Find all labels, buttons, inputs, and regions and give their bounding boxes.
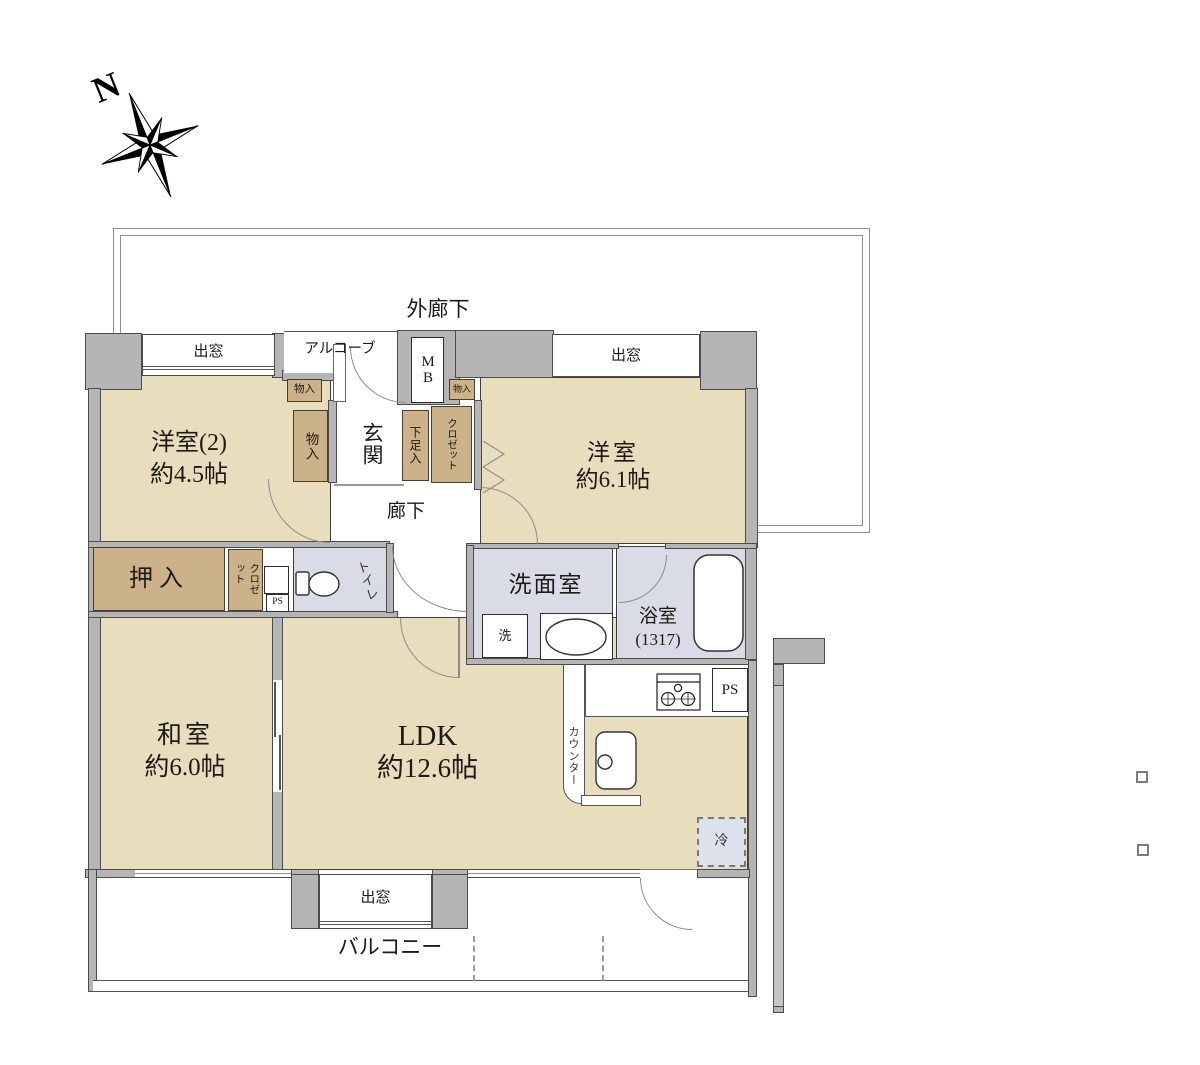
pillar-mark (1136, 771, 1148, 783)
wall (700, 331, 757, 390)
futon-closet-label: 押入 (93, 549, 225, 609)
bathroom-size-label: (1317) (618, 629, 698, 651)
bay-window-top-left-sill (142, 366, 275, 370)
pillar-mark (1137, 844, 1149, 856)
storage-box-2-label: 物入 (449, 380, 475, 399)
room-ldk-area: 約12.6帖 (350, 752, 505, 784)
pipe-space-kitchen-label: PS (712, 670, 748, 710)
balcony-label: バルコニー (320, 935, 460, 961)
sliding-door-leaf (279, 735, 281, 790)
washer-label: 洗 (482, 616, 528, 656)
room-western-name: 洋室 (553, 439, 673, 467)
wall (291, 874, 319, 929)
wall (745, 388, 758, 548)
bathroom-label: 浴室 (620, 605, 696, 629)
wall (745, 548, 757, 660)
storage-box-1-label: 物入 (287, 380, 322, 401)
wall (665, 543, 757, 549)
balcony-rail (93, 980, 748, 992)
wall (88, 388, 101, 870)
wall (474, 400, 482, 490)
balcony-partition (602, 936, 604, 981)
door-leaf-ldk (458, 618, 460, 678)
shoe-cabinet-label: 下足入 (402, 412, 429, 479)
washbasin-cabinet (540, 613, 613, 660)
room-western-2-area: 約4.5帖 (113, 460, 265, 490)
room-western-2-name: 洋室(2) (115, 428, 263, 458)
floorplan: 外廊下 カウンター 出窓 (0, 0, 1200, 1065)
washroom-label: 洗面室 (486, 570, 606, 600)
storage-box-3-label: 物入 (293, 412, 328, 480)
closet-hall-label: クロゼット (228, 563, 263, 597)
outer-corridor-label: 外廊下 (393, 297, 483, 323)
room-western-area: 約6.1帖 (550, 466, 676, 494)
balcony-door-opening (640, 869, 698, 878)
balcony-left-wall (88, 869, 97, 992)
entrance-label: 玄関 (352, 408, 392, 480)
room-japanese-area: 約6.0帖 (110, 753, 260, 783)
bay-window-top-right-label: 出窓 (552, 346, 700, 366)
outer-structure (773, 664, 784, 686)
outer-structure (773, 638, 825, 664)
hall-cabinet (264, 566, 289, 594)
alcove-label: アルコーブ (284, 340, 396, 360)
sliding-door-leaf (274, 682, 276, 737)
wall (455, 330, 554, 378)
compass-icon: N (68, 42, 219, 216)
compass-north-label: N (87, 64, 126, 111)
wall (432, 874, 468, 929)
meter-box-label: MB (411, 340, 444, 400)
bay-window-bottom-sill (319, 921, 432, 925)
wall (697, 869, 750, 878)
entrance-step-line (334, 484, 404, 486)
kitchen-counter-end (581, 795, 641, 806)
bay-window-bottom-label: 出窓 (319, 888, 432, 908)
wall (85, 333, 142, 390)
closet-entrance-label: クロゼット (431, 409, 472, 480)
room-japanese-name: 和室 (120, 721, 250, 751)
wall (328, 400, 337, 483)
window-ldk (468, 869, 641, 878)
refrigerator-label: 冷 (697, 819, 746, 865)
pipe-space-small-label: PS (266, 595, 289, 611)
wall (88, 611, 398, 618)
kitchen-counter-label: カウンター (561, 700, 585, 812)
room-ldk-name: LDK (355, 719, 500, 753)
wall (748, 660, 757, 997)
window-japanese-room (135, 869, 292, 878)
bay-window-top-left-label: 出窓 (142, 342, 275, 362)
outer-structure-cap (773, 1006, 784, 1013)
balcony-partition (473, 936, 475, 981)
outer-structure-bar (773, 686, 784, 1008)
hallway-label: 廊下 (376, 500, 436, 524)
